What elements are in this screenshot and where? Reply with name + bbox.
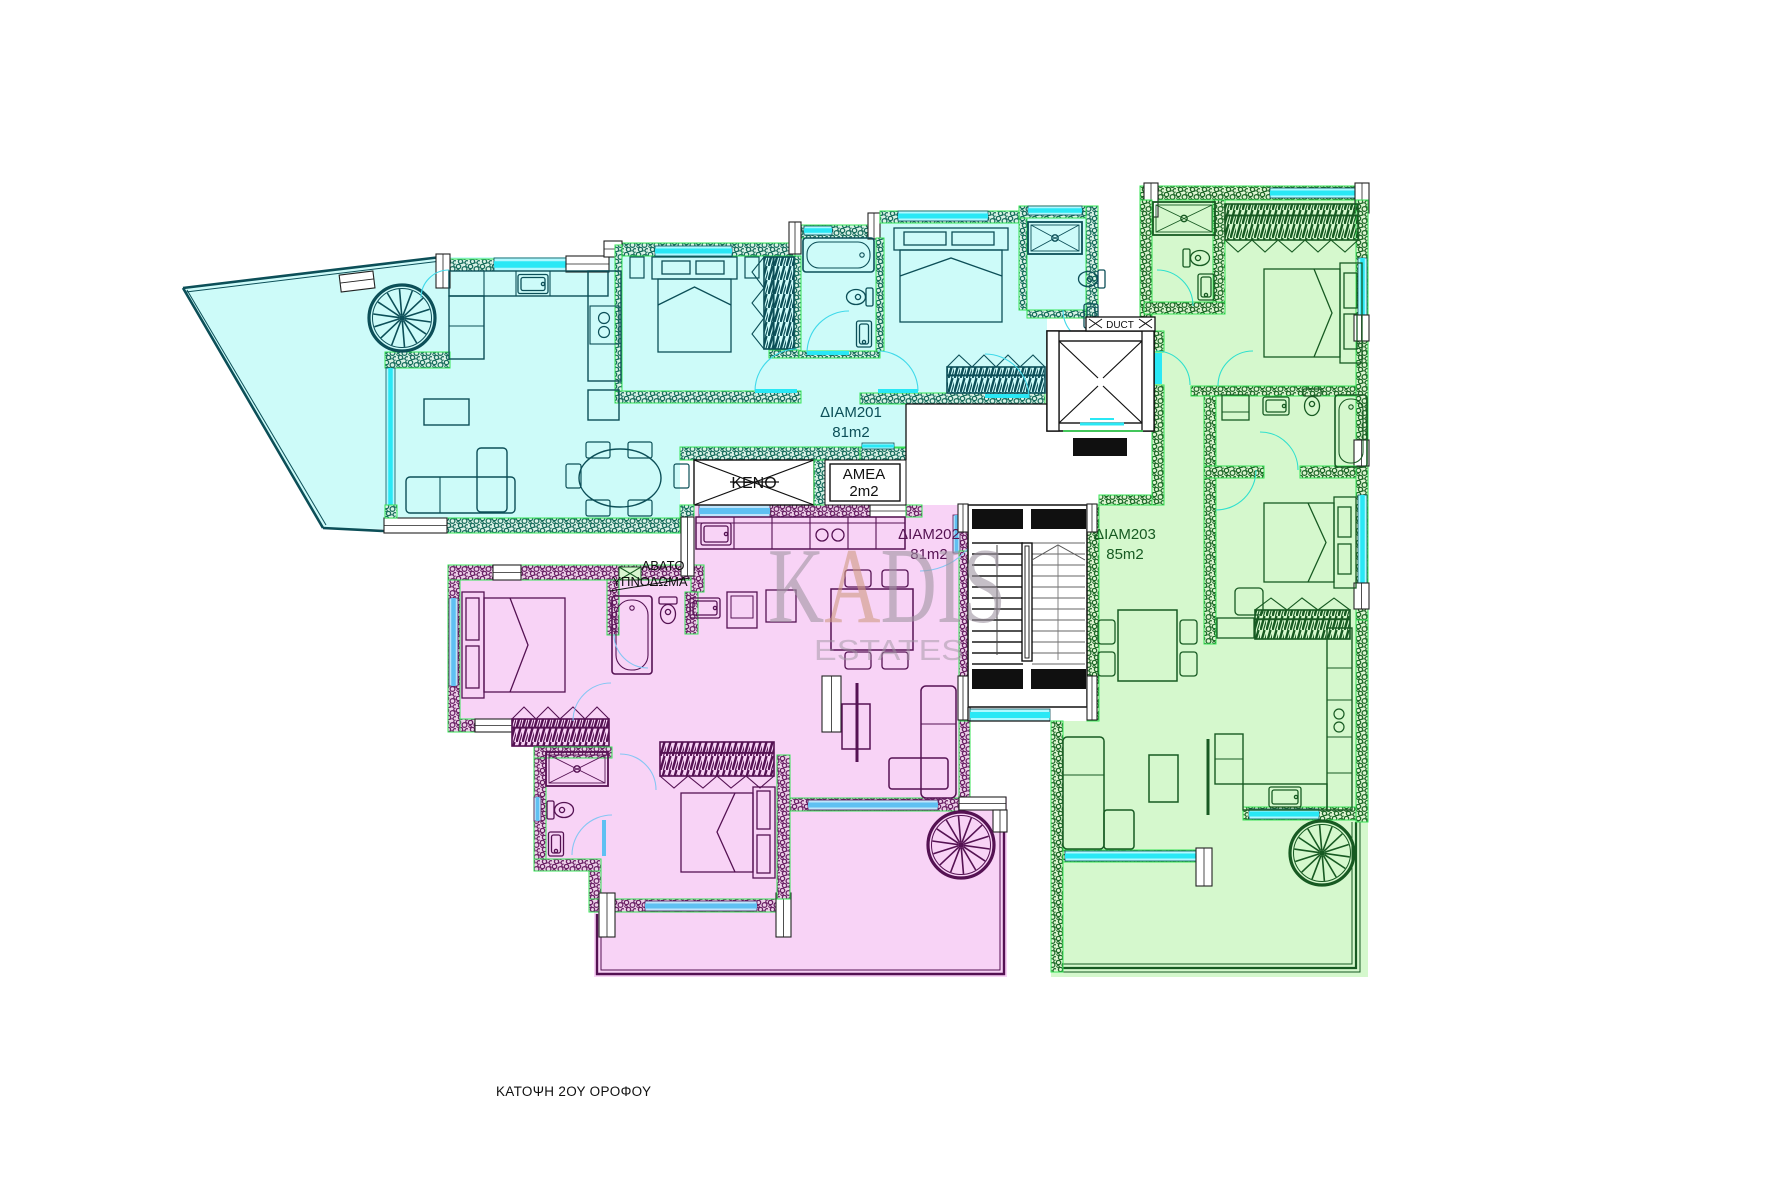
svg-text:ΥΠΝΟΔΩΜΑ: ΥΠΝΟΔΩΜΑ	[612, 574, 688, 589]
svg-text:ΔΙΑΜ201: ΔΙΑΜ201	[820, 404, 882, 421]
svg-text:ΑΒΑΤΟ: ΑΒΑΤΟ	[642, 558, 685, 573]
svg-text:ΚΕΝΟ: ΚΕΝΟ	[731, 475, 776, 492]
svg-text:ΚΑΤΟΨΗ 2ΟΥ ΟΡΟΦΟΥ: ΚΑΤΟΨΗ 2ΟΥ ΟΡΟΦΟΥ	[496, 1084, 651, 1099]
svg-text:DUCT: DUCT	[1106, 320, 1134, 331]
svg-text:81m2: 81m2	[832, 424, 870, 441]
svg-text:ESTATES: ESTATES	[814, 635, 964, 667]
svg-text:AMEA: AMEA	[843, 466, 886, 483]
svg-text:2m2: 2m2	[849, 483, 878, 500]
svg-text:KADIS: KADIS	[768, 527, 1006, 646]
svg-text:85m2: 85m2	[1106, 546, 1144, 563]
svg-text:ΔΙΑΜ203: ΔΙΑΜ203	[1094, 526, 1156, 543]
